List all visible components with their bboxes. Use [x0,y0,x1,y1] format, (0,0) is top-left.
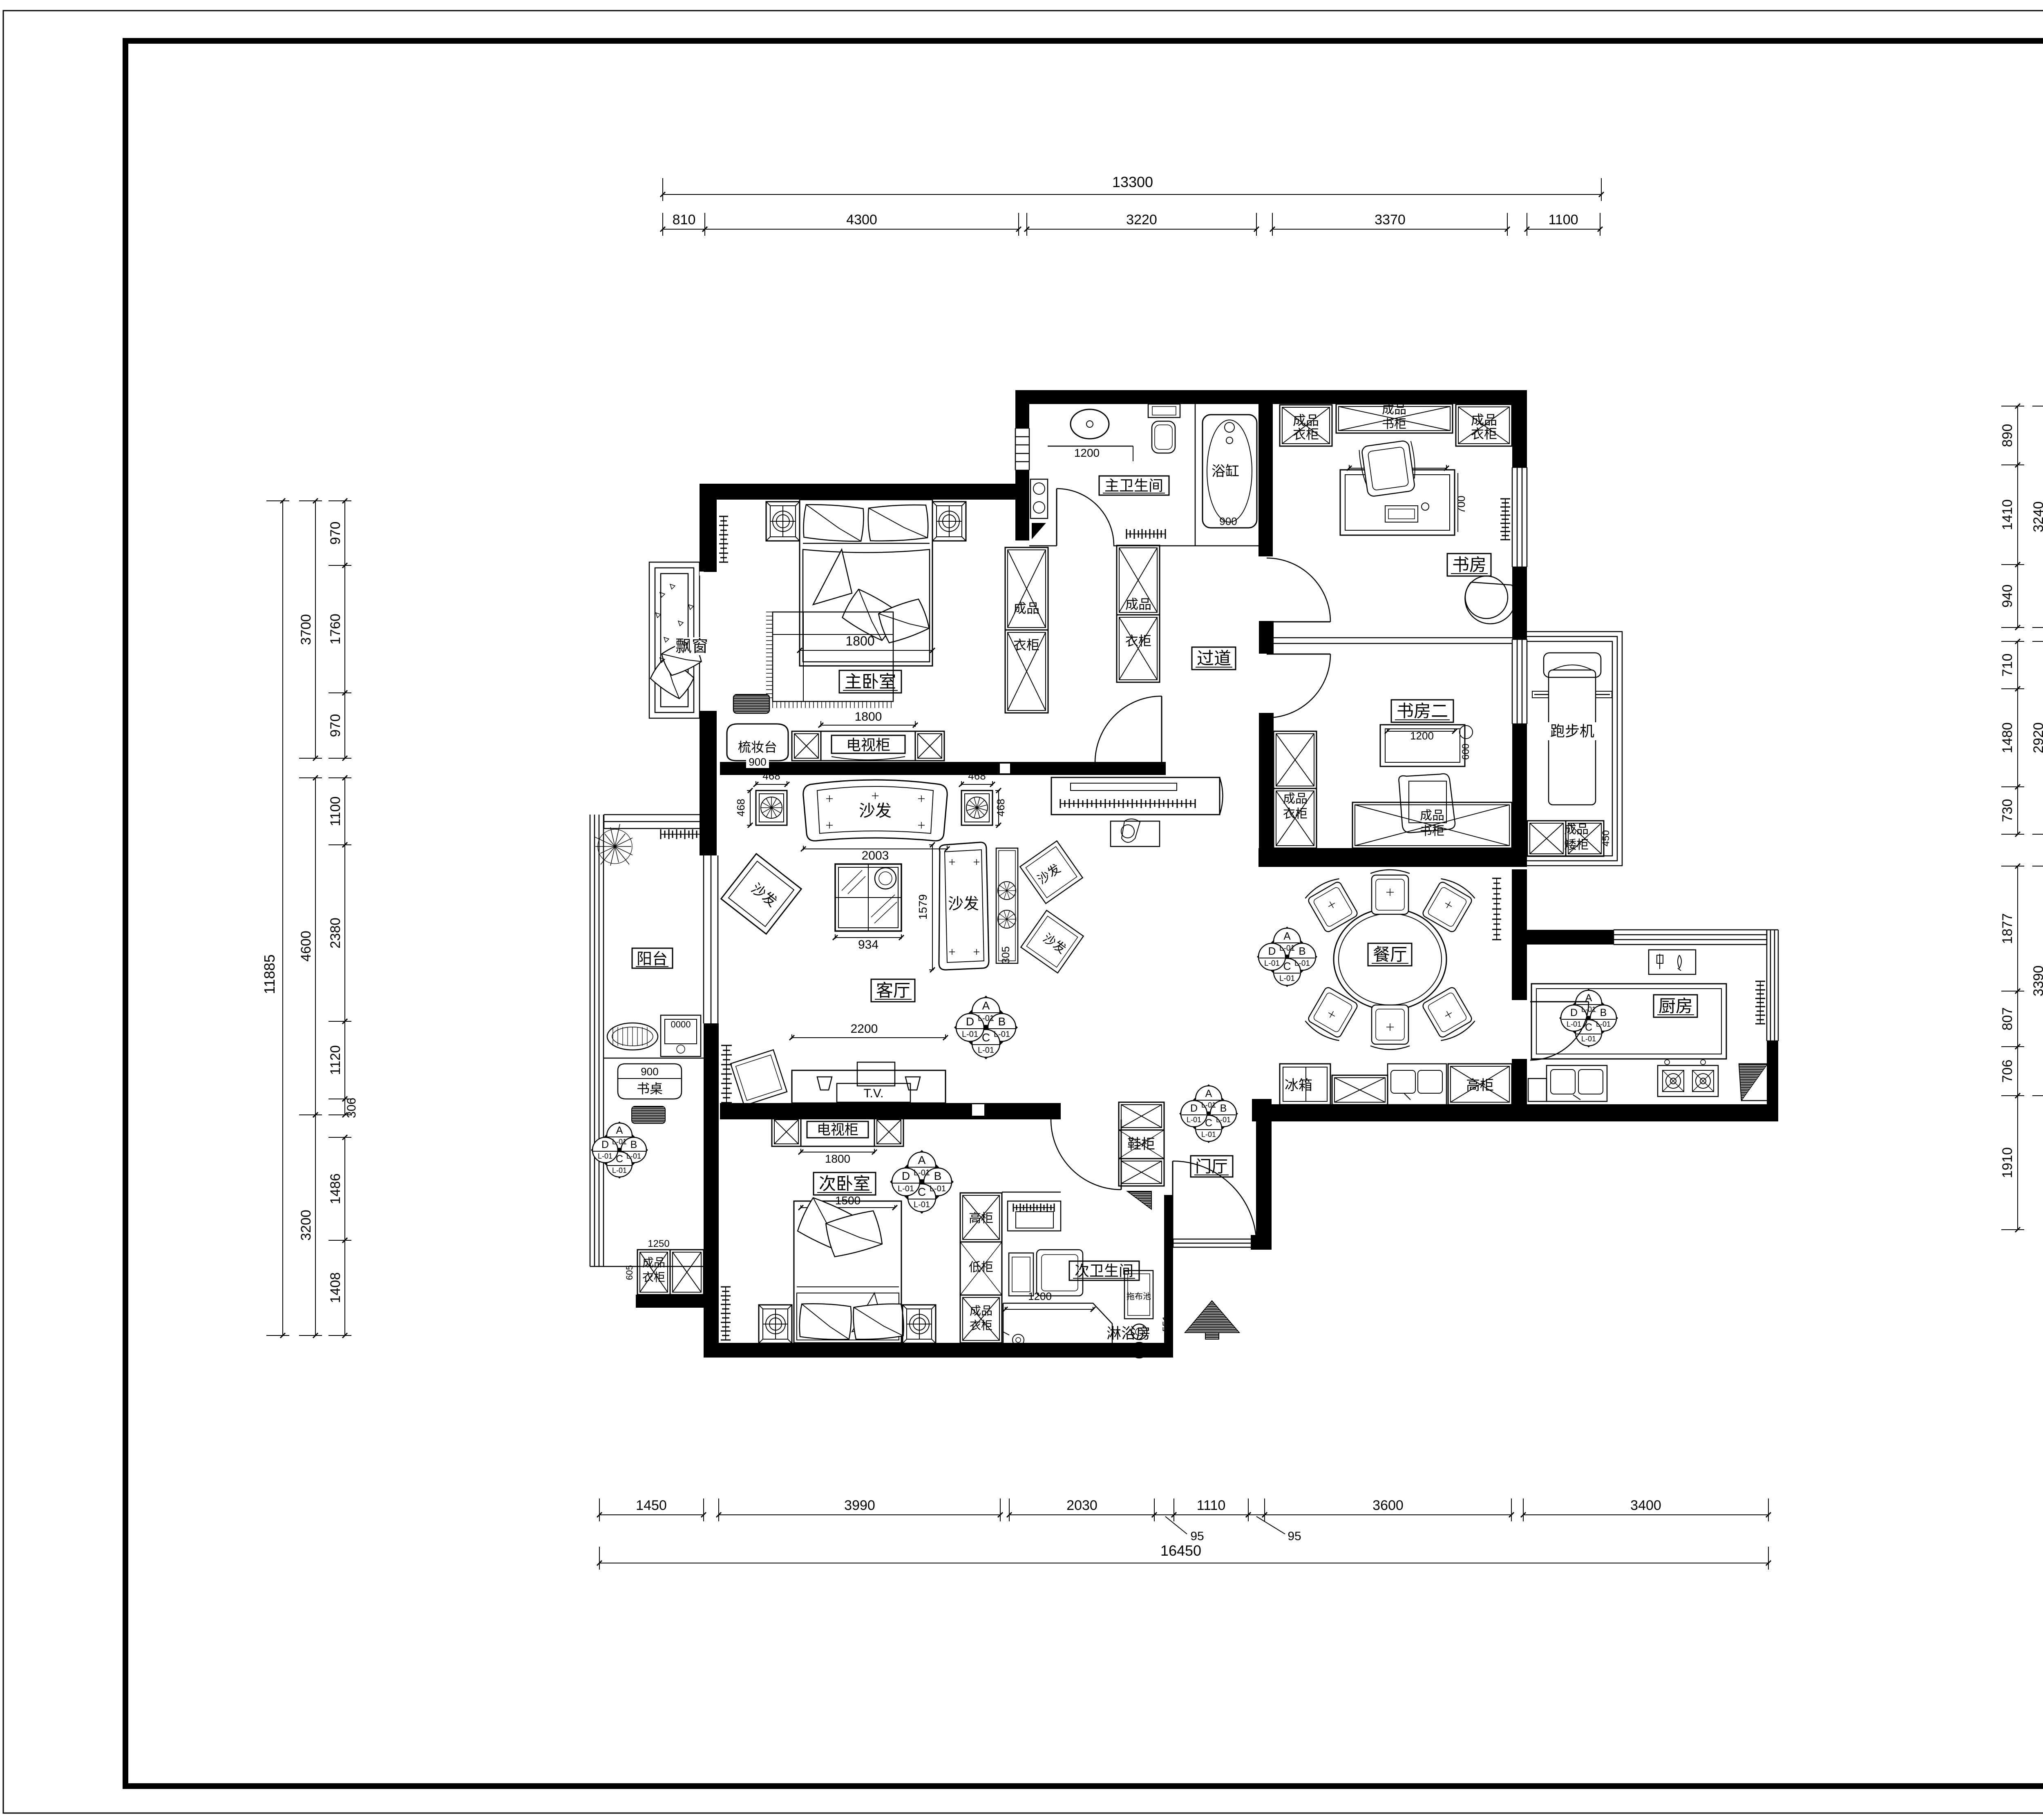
svg-text:矮柜: 矮柜 [1564,838,1589,852]
svg-text:衣柜: 衣柜 [1283,807,1308,821]
svg-text:L-01: L-01 [1279,974,1295,983]
svg-text:710: 710 [2000,654,2015,677]
svg-text:C: C [1205,1117,1212,1129]
svg-text:客厅: 客厅 [876,981,910,1000]
svg-text:3400: 3400 [1630,1498,1661,1513]
svg-text:600: 600 [1460,744,1471,760]
svg-text:306: 306 [345,1098,358,1118]
svg-text:450: 450 [1600,830,1612,846]
svg-text:书房: 书房 [1452,555,1486,574]
svg-text:4600: 4600 [298,931,314,962]
svg-text:B: B [998,1015,1006,1028]
svg-text:书柜: 书柜 [1420,824,1444,838]
svg-text:1486: 1486 [328,1173,343,1204]
svg-text:A: A [982,999,990,1012]
svg-text:L-01: L-01 [898,1184,914,1193]
svg-text:L-01: L-01 [962,1030,978,1039]
svg-text:拖布池: 拖布池 [1127,1292,1151,1301]
svg-text:L-01: L-01 [1264,959,1280,968]
svg-text:D: D [1190,1103,1198,1114]
svg-text:衣柜: 衣柜 [1125,634,1151,648]
svg-text:L-01: L-01 [598,1152,612,1160]
svg-text:D: D [902,1170,910,1182]
svg-text:T.V.: T.V. [864,1087,884,1100]
svg-text:1910: 1910 [2000,1147,2015,1178]
svg-text:1410: 1410 [2000,499,2015,530]
svg-text:L-01: L-01 [626,1152,641,1160]
svg-text:电视柜: 电视柜 [817,1122,858,1138]
svg-text:D: D [1268,945,1276,957]
svg-text:1200: 1200 [1028,1290,1052,1302]
svg-text:807: 807 [2000,1007,2015,1031]
svg-text:L-01: L-01 [1279,944,1295,953]
svg-text:成品: 成品 [1013,601,1039,616]
svg-text:1110: 1110 [1197,1498,1226,1513]
svg-text:700: 700 [1455,496,1467,513]
svg-text:B: B [1600,1007,1607,1018]
svg-text:淋浴房: 淋浴房 [1106,1325,1151,1342]
svg-text:跑步机: 跑步机 [1550,723,1594,739]
svg-text:L-01: L-01 [1581,1035,1596,1043]
svg-text:厨房: 厨房 [1659,996,1693,1016]
svg-text:浴缸: 浴缸 [1211,464,1239,479]
svg-text:0000: 0000 [671,1019,691,1029]
svg-text:衣柜: 衣柜 [970,1319,992,1332]
svg-text:95: 95 [1287,1530,1301,1543]
svg-text:940: 940 [2000,585,2015,608]
svg-text:1200: 1200 [1074,447,1100,459]
svg-text:成品: 成品 [970,1304,992,1317]
svg-text:468: 468 [995,799,1007,816]
svg-text:C: C [1283,960,1291,972]
svg-text:A: A [918,1154,926,1166]
svg-text:551: 551 [1161,1315,1172,1332]
svg-text:次卧室: 次卧室 [819,1174,870,1193]
svg-text:1579: 1579 [916,894,929,920]
svg-text:1760: 1760 [328,614,343,645]
svg-text:730: 730 [2000,799,2015,822]
svg-text:主卫生间: 主卫生间 [1104,477,1163,494]
svg-text:书柜: 书柜 [1382,418,1406,431]
svg-text:C: C [616,1153,623,1165]
svg-text:1100: 1100 [328,796,343,826]
svg-text:1800: 1800 [825,1152,850,1165]
svg-text:L-01: L-01 [1567,1020,1581,1028]
svg-text:1100: 1100 [1548,212,1578,228]
svg-text:3390: 3390 [2031,965,2043,996]
svg-text:L-01: L-01 [612,1138,627,1146]
svg-text:L-01: L-01 [978,1014,994,1023]
svg-text:3700: 3700 [298,614,314,645]
svg-text:低柜: 低柜 [969,1261,993,1274]
svg-text:成品: 成品 [1420,809,1444,822]
svg-text:高柜: 高柜 [969,1212,993,1225]
svg-text:890: 890 [2000,424,2015,447]
svg-text:706: 706 [2000,1060,2015,1083]
svg-text:书房二: 书房二 [1397,701,1448,721]
svg-text:L-01: L-01 [1596,1020,1611,1028]
svg-text:3600: 3600 [1372,1498,1404,1513]
svg-text:成品: 成品 [1125,597,1151,612]
svg-text:D: D [1570,1007,1578,1018]
svg-text:衣柜: 衣柜 [1293,427,1319,442]
svg-text:2003: 2003 [862,849,889,862]
svg-text:95: 95 [1190,1530,1204,1543]
svg-text:主卧室: 主卧室 [845,672,896,691]
svg-text:2920: 2920 [2031,722,2043,753]
svg-text:1800: 1800 [845,634,874,648]
svg-text:1250: 1250 [648,1238,669,1249]
svg-text:沙发: 沙发 [859,802,892,820]
svg-text:冰箱: 冰箱 [1285,1078,1312,1093]
svg-text:1450: 1450 [636,1498,667,1513]
svg-text:阳台: 阳台 [637,951,668,968]
svg-text:C: C [1585,1022,1592,1033]
svg-text:L-01: L-01 [1216,1116,1231,1124]
svg-text:1500: 1500 [835,1194,861,1207]
svg-text:鞋柜: 鞋柜 [1127,1137,1155,1152]
svg-text:B: B [934,1170,942,1182]
svg-text:过道: 过道 [1197,649,1231,668]
svg-text:C: C [918,1186,926,1198]
svg-text:电视柜: 电视柜 [846,737,890,753]
svg-text:成品: 成品 [1471,413,1497,427]
svg-text:2380: 2380 [328,918,343,949]
svg-text:书桌: 书桌 [637,1081,663,1096]
svg-text:810: 810 [673,212,696,228]
svg-text:3200: 3200 [298,1210,314,1241]
svg-text:L-01: L-01 [914,1168,930,1177]
svg-text:970: 970 [328,522,343,545]
svg-text:梳妆台: 梳妆台 [738,740,777,755]
svg-text:934: 934 [858,938,878,951]
svg-text:L-01: L-01 [1201,1130,1216,1139]
svg-text:468: 468 [762,770,780,782]
svg-text:L-01: L-01 [914,1200,930,1209]
svg-text:A: A [1283,930,1291,942]
svg-text:L-01: L-01 [994,1030,1010,1039]
svg-text:1408: 1408 [328,1272,343,1303]
svg-text:605: 605 [624,1265,635,1280]
svg-text:11885: 11885 [261,954,278,994]
svg-text:1200: 1200 [1410,730,1434,742]
svg-text:468: 468 [968,770,986,782]
svg-text:B: B [630,1139,637,1150]
svg-text:L-01: L-01 [612,1166,627,1175]
svg-text:3220: 3220 [1126,212,1157,228]
svg-text:衣柜: 衣柜 [1471,427,1497,441]
svg-text:B: B [1220,1103,1227,1114]
svg-text:沙发: 沙发 [948,895,979,913]
svg-text:1480: 1480 [2000,722,2015,753]
svg-text:成品: 成品 [1564,823,1589,836]
svg-text:成品: 成品 [1382,403,1406,416]
svg-text:13300: 13300 [1112,174,1153,190]
svg-text:L-01: L-01 [978,1046,994,1055]
svg-text:1800: 1800 [855,710,882,724]
svg-text:D: D [966,1015,974,1028]
svg-text:3240: 3240 [2031,501,2043,532]
svg-text:16450: 16450 [1160,1542,1201,1559]
svg-text:A: A [616,1125,623,1136]
svg-text:L-01: L-01 [1187,1116,1201,1124]
svg-text:衣柜: 衣柜 [642,1271,665,1284]
svg-text:900: 900 [641,1065,658,1078]
svg-text:2200: 2200 [851,1022,878,1036]
svg-text:L-01: L-01 [930,1184,946,1193]
svg-text:B: B [1299,945,1305,957]
svg-text:4300: 4300 [846,212,877,228]
svg-text:1877: 1877 [2000,913,2015,944]
svg-text:成品: 成品 [1293,413,1319,428]
svg-text:A: A [1205,1088,1212,1099]
svg-text:1120: 1120 [328,1045,343,1075]
svg-text:900: 900 [749,756,766,768]
svg-text:门厅: 门厅 [1195,1158,1228,1176]
svg-text:成品: 成品 [1283,792,1308,806]
svg-text:970: 970 [328,714,343,737]
svg-text:2030: 2030 [1066,1498,1097,1513]
svg-text:飘窗: 飘窗 [675,637,708,655]
svg-text:C: C [982,1031,990,1044]
svg-text:衣柜: 衣柜 [1013,638,1039,652]
svg-text:468: 468 [735,799,747,816]
svg-text:900: 900 [1219,515,1237,527]
svg-text:成品: 成品 [642,1256,665,1269]
svg-text:3990: 3990 [844,1498,875,1513]
svg-text:3370: 3370 [1375,212,1406,228]
svg-text:305: 305 [999,946,1012,964]
svg-text:高柜: 高柜 [1466,1078,1494,1093]
svg-text:餐厅: 餐厅 [1373,945,1407,964]
svg-text:D: D [601,1139,609,1150]
svg-text:L-01: L-01 [1201,1101,1216,1109]
svg-text:L-01: L-01 [1294,959,1310,968]
